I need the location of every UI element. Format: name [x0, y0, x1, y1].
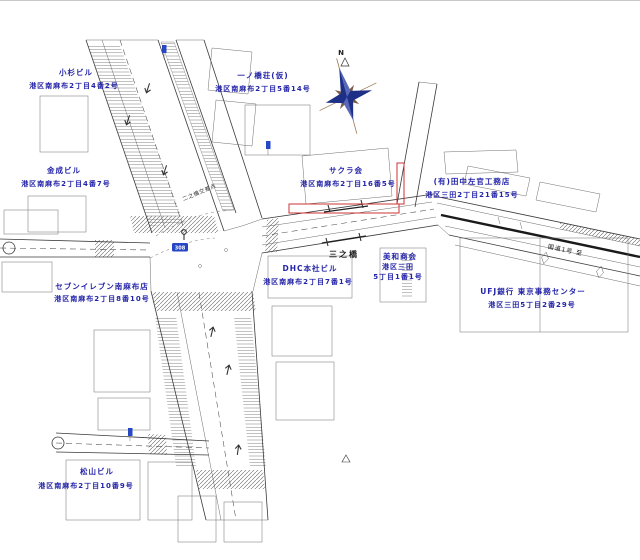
building-label-kanari: 金成ビル	[46, 165, 81, 175]
building-label-dhc: DHC本社ビル	[282, 263, 337, 273]
manhole-icon	[225, 249, 228, 252]
building-label-miwa: 美和商会	[383, 251, 417, 261]
lane-arrow-icon	[208, 326, 216, 337]
building-label-seveneleven: セブンイレブン南麻布店	[55, 281, 149, 291]
building-address-ufj: 港区三田5丁目2番29号	[488, 300, 575, 309]
building-address-seveneleven: 港区南麻布2丁目8番10号	[54, 294, 149, 303]
building-address-kanari: 港区南麻布2丁目4番7号	[21, 179, 111, 188]
labels: 小杉ビル 港区南麻布2丁目4番2号 金成ビル 港区南麻布2丁目4番7号 一ノ橋荘…	[21, 67, 586, 490]
building-label-matsuyama: 松山ビル	[80, 466, 114, 476]
sign-post-icon	[266, 141, 271, 155]
compass-north-label: N	[338, 49, 344, 57]
building-address-sakura: 港区南麻布2丁目16番5号	[300, 179, 395, 188]
building-address-miwa-2: 5丁目1番1号	[373, 272, 423, 281]
lane-arrow-icon	[234, 445, 241, 456]
survey-mark-icon	[342, 455, 350, 462]
building-address-kosugi: 港区南麻布2丁目4番2号	[29, 81, 119, 90]
route-shield-number: 308	[175, 246, 186, 252]
hatch-areas	[88, 42, 640, 489]
manhole-icon	[199, 265, 202, 268]
building-address-miwa-1: 港区三田	[382, 262, 414, 271]
building-address-tanaka: 港区三田2丁目21番15号	[425, 190, 518, 199]
bridge-name-label: 三之橋	[329, 249, 359, 259]
route-shield: 308	[172, 243, 188, 252]
crosswalk	[95, 240, 114, 257]
building-label-ufj: UFJ銀行 東京事務センター	[480, 286, 586, 296]
crossing-name-label: 二之橋交差点	[181, 181, 217, 202]
crosswalk	[265, 218, 279, 253]
sign-post-icon	[128, 428, 133, 441]
building-address-ichinohashiso: 港区南麻布2丁目5番14号	[215, 84, 310, 93]
north-arrow-icon	[341, 58, 349, 66]
road-markings	[124, 82, 605, 462]
lane-arrow-icon	[224, 364, 232, 375]
lane-arrow-icon	[144, 82, 153, 93]
building-label-sakura: サクラ会	[329, 165, 363, 175]
diamond-marking-icon	[540, 251, 549, 264]
crosswalk	[130, 216, 219, 233]
crosswalk	[152, 292, 256, 311]
building-label-tanaka: (有)田中左官工務店	[434, 176, 511, 186]
building-address-matsuyama: 港区南麻布2丁目10番9号	[38, 481, 133, 490]
building-address-dhc: 港区南麻布2丁目7番1号	[263, 277, 353, 286]
building-label-kosugi: 小杉ビル	[59, 67, 93, 77]
map-canvas: 308 N 小杉ビル 港区南麻布2丁目4番2号 金成ビル 港区南麻布2丁目4番7…	[0, 0, 640, 560]
crosswalk	[148, 434, 167, 455]
compass-rose: N	[308, 49, 388, 141]
building-label-ichinohashiso: 一ノ橋荘(仮)	[237, 70, 288, 80]
